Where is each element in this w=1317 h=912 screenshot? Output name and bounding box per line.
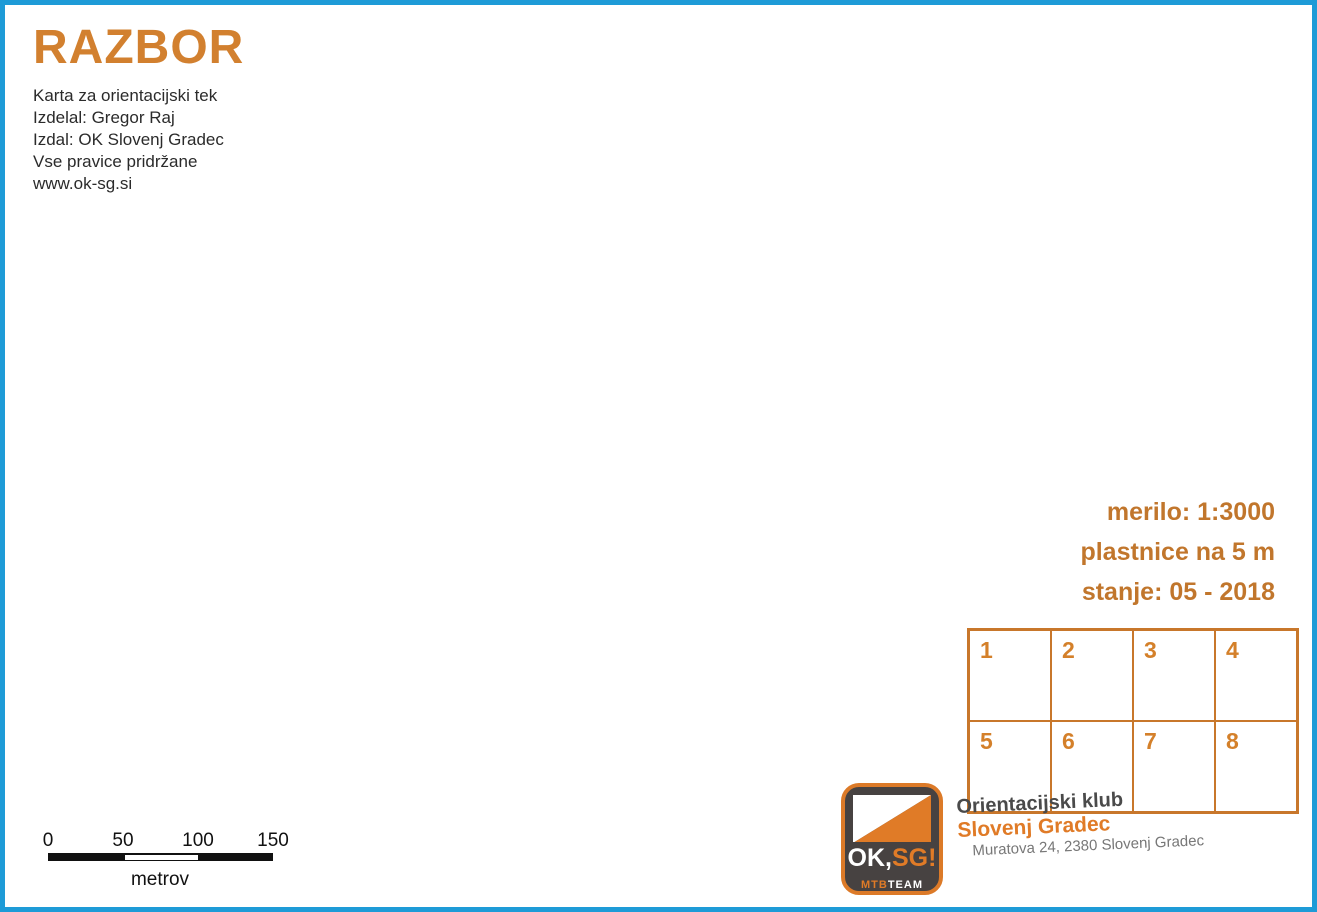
contour-interval-label: plastnice na 5 m xyxy=(1080,532,1275,572)
control-card-grid: 1 2 3 4 5 6 7 8 xyxy=(967,628,1299,814)
control-cell-4: 4 xyxy=(1215,630,1297,721)
title-line-author: Izdelal: Gregor Raj xyxy=(33,107,244,129)
title-line-url: www.ok-sg.si xyxy=(33,173,244,195)
scale-tick-150: 150 xyxy=(257,830,289,852)
scale-unit: metrov xyxy=(95,869,225,891)
scale-tick-50: 50 xyxy=(112,830,133,852)
scale-label: merilo: 1:3000 xyxy=(1080,492,1275,532)
scale-tick-0: 0 xyxy=(43,830,54,852)
control-cell-8: 8 xyxy=(1215,721,1297,812)
control-cell-2: 2 xyxy=(1051,630,1133,721)
title-line-type: Karta za orientacijski tek xyxy=(33,85,244,107)
scale-bar: 0 50 100 150 metrov xyxy=(0,822,340,902)
club-logo: OK,SG! MTBTEAM xyxy=(841,783,943,895)
title-block: RAZBOR Karta za orientacijski tek Izdela… xyxy=(33,20,244,195)
map-title: RAZBOR xyxy=(33,20,244,75)
scale-bar-rule xyxy=(48,853,273,861)
club-logo-subtext: MTBTEAM xyxy=(861,879,923,891)
control-cell-1: 1 xyxy=(969,630,1051,721)
club-text-block: Orientacijski klub Slovenj Gradec Murato… xyxy=(956,785,1204,860)
scale-tick-100: 100 xyxy=(182,830,214,852)
map-info-block: merilo: 1:3000 plastnice na 5 m stanje: … xyxy=(1080,492,1275,612)
club-logo-text: OK,SG! xyxy=(848,844,937,873)
orienteering-flag-icon xyxy=(853,795,931,842)
title-line-publisher: Izdal: OK Slovenj Gradec xyxy=(33,129,244,151)
title-line-rights: Vse pravice pridržane xyxy=(33,151,244,173)
status-label: stanje: 05 - 2018 xyxy=(1080,572,1275,612)
control-cell-3: 3 xyxy=(1133,630,1215,721)
map-page: RAZBOR Karta za orientacijski tek Izdela… xyxy=(0,0,1317,912)
